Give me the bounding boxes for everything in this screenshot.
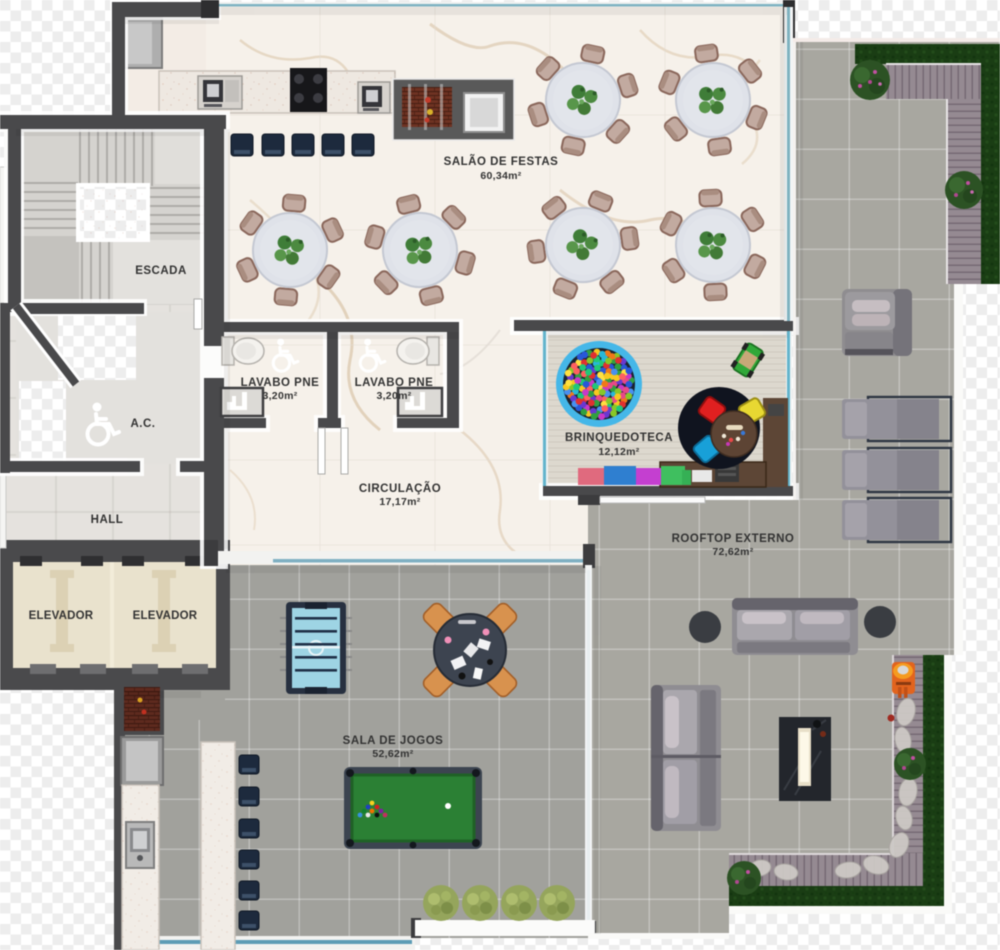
svg-text:52,62m²: 52,62m²	[372, 748, 413, 760]
svg-text:17,17m²: 17,17m²	[379, 496, 420, 508]
svg-text:SALÃO DE FESTAS: SALÃO DE FESTAS	[444, 155, 559, 168]
svg-text:3,20m²: 3,20m²	[376, 390, 411, 402]
svg-text:ROOFTOP EXTERNO: ROOFTOP EXTERNO	[672, 533, 795, 545]
svg-text:3,20m²: 3,20m²	[262, 390, 297, 402]
svg-text:12,12m²: 12,12m²	[598, 446, 639, 458]
svg-text:LAVABO PNE: LAVABO PNE	[355, 377, 434, 389]
svg-text:ESCADA: ESCADA	[135, 265, 187, 277]
svg-text:LAVABO PNE: LAVABO PNE	[241, 377, 320, 389]
svg-text:A.C.: A.C.	[131, 418, 156, 430]
svg-text:SALA DE JOGOS: SALA DE JOGOS	[343, 735, 444, 747]
svg-text:BRINQUEDOTECA: BRINQUEDOTECA	[565, 432, 673, 444]
svg-text:CIRCULAÇÃO: CIRCULAÇÃO	[359, 482, 441, 495]
svg-text:ELEVADOR: ELEVADOR	[29, 610, 94, 622]
svg-text:ELEVADOR: ELEVADOR	[133, 610, 198, 622]
svg-text:HALL: HALL	[91, 514, 124, 526]
svg-text:60,34m²: 60,34m²	[480, 170, 521, 182]
svg-text:72,62m²: 72,62m²	[712, 546, 753, 558]
